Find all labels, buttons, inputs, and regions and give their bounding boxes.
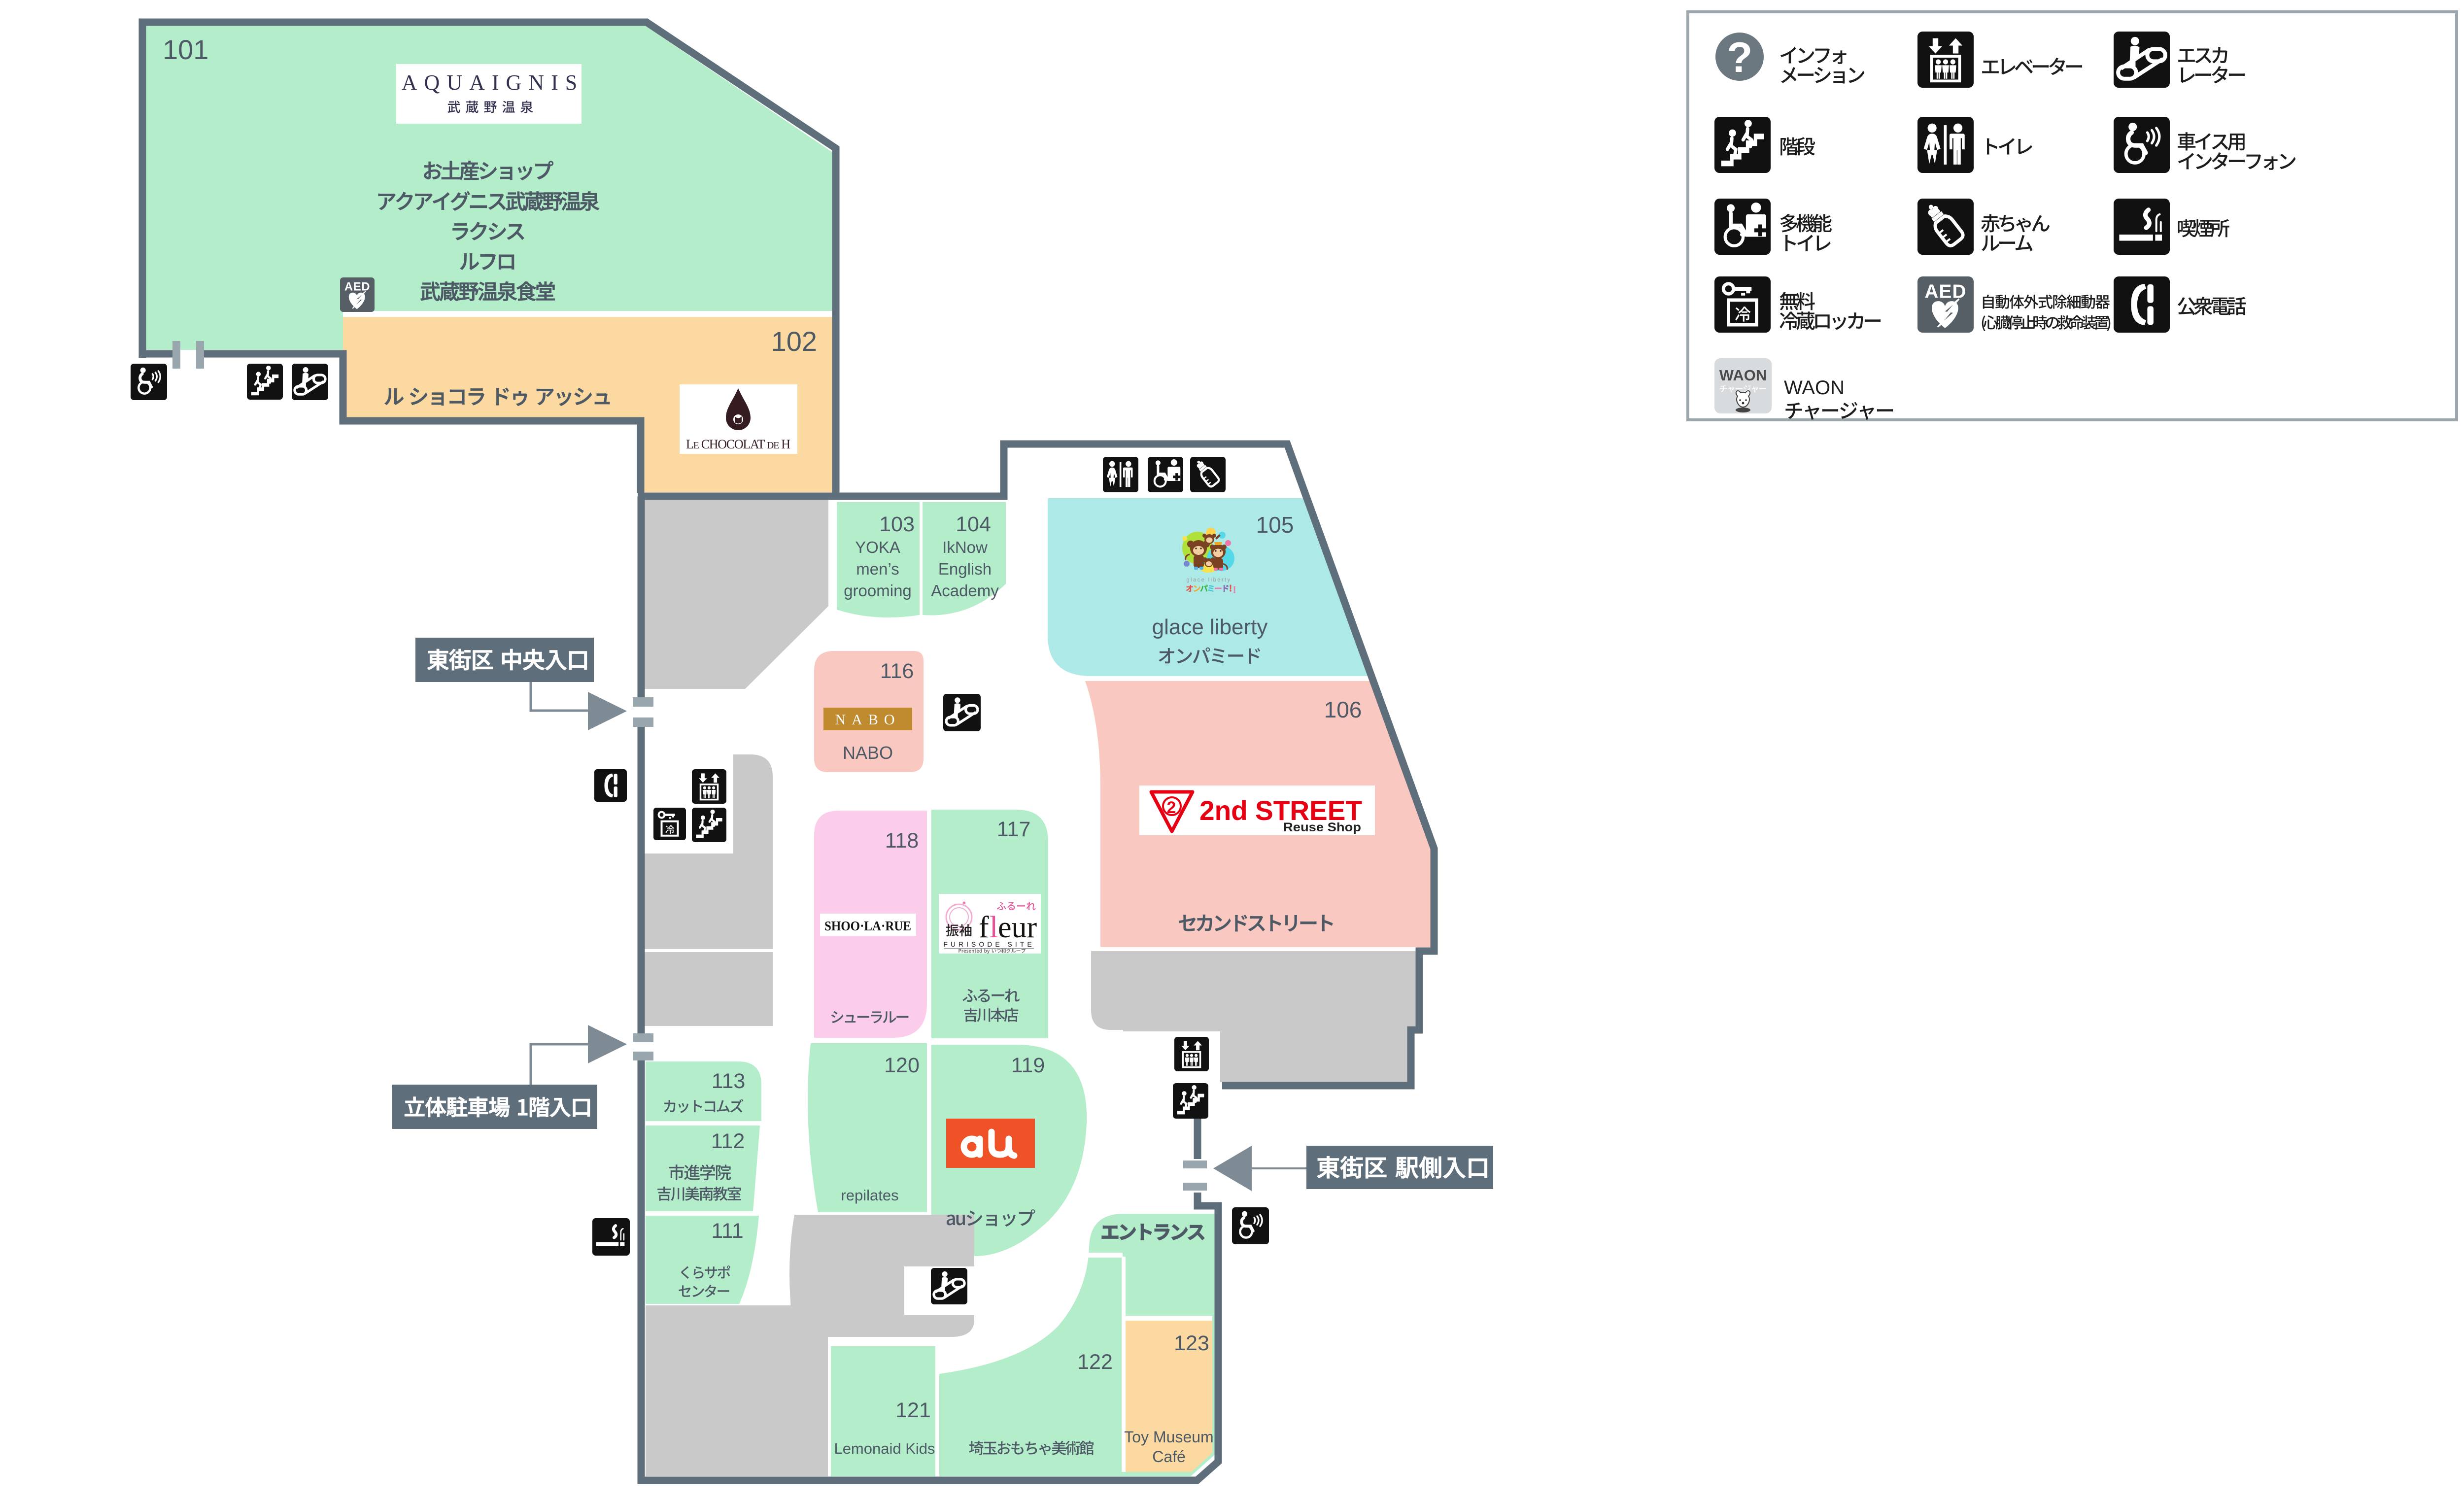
svg-text:WAON: WAON xyxy=(1719,367,1767,384)
svg-text:Reuse Shop: Reuse Shop xyxy=(1283,820,1361,834)
svg-text:glace liberty: glace liberty xyxy=(1186,577,1231,583)
svg-text:103: 103 xyxy=(879,512,915,536)
svg-text:l: l xyxy=(990,911,998,944)
svg-text:eur: eur xyxy=(998,911,1037,944)
svg-text:105: 105 xyxy=(1256,512,1294,538)
svg-text:116: 116 xyxy=(880,659,914,683)
svg-text:112: 112 xyxy=(711,1129,745,1153)
svg-text:106: 106 xyxy=(1324,697,1362,722)
svg-text:111: 111 xyxy=(711,1219,743,1243)
svg-text:f: f xyxy=(979,911,989,944)
svg-text:AQUAIGNIS: AQUAIGNIS xyxy=(402,70,584,95)
svg-text:113: 113 xyxy=(712,1069,746,1093)
svg-text:NABO: NABO xyxy=(835,712,900,728)
svg-text:glace liberty: glace liberty xyxy=(1152,615,1268,639)
svg-text:2: 2 xyxy=(1167,798,1176,817)
svg-text:?: ? xyxy=(1727,34,1753,81)
svg-text:123: 123 xyxy=(1174,1331,1209,1355)
svg-text:NABO: NABO xyxy=(843,743,893,763)
svg-text:122: 122 xyxy=(1077,1350,1113,1374)
svg-text:WAON: WAON xyxy=(1784,377,1845,399)
svg-text:SHOO·LA·RUE: SHOO·LA·RUE xyxy=(824,919,911,933)
svg-text:102: 102 xyxy=(771,326,817,357)
svg-text:FURISODE SITE: FURISODE SITE xyxy=(943,940,1034,948)
svg-text:119: 119 xyxy=(1011,1054,1045,1077)
svg-text:118: 118 xyxy=(885,829,919,853)
svg-text:121: 121 xyxy=(895,1399,931,1422)
svg-text:Lemonaid Kids: Lemonaid Kids xyxy=(834,1440,935,1457)
svg-text:104: 104 xyxy=(956,512,991,536)
svg-text:repilates: repilates xyxy=(841,1187,898,1204)
svg-text:120: 120 xyxy=(884,1054,920,1077)
svg-text:101: 101 xyxy=(163,34,208,65)
svg-text:✽: ✽ xyxy=(962,901,966,905)
svg-text:117: 117 xyxy=(997,818,1031,841)
